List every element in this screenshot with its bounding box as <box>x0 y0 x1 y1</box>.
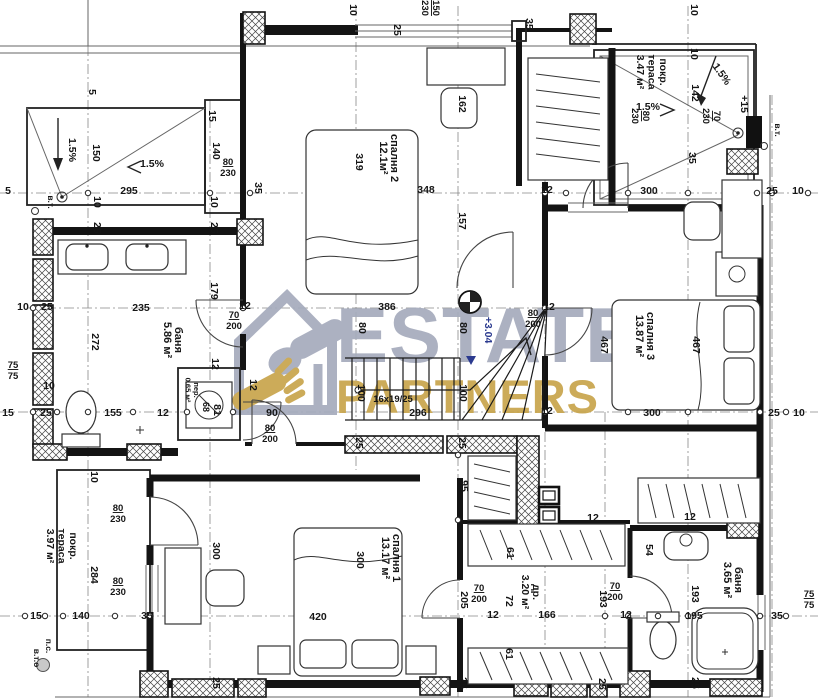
chair-bedroom1 <box>206 570 244 606</box>
dimension-label: 80200 <box>262 423 278 445</box>
dimension-label: 25 <box>91 222 103 234</box>
room-label: др.3.20 м² <box>519 575 542 610</box>
dimension-label: 10 <box>91 196 103 208</box>
dimension-label: 81 <box>211 404 223 416</box>
dimension-label: 35 <box>252 182 264 194</box>
dimension-label: 319 <box>353 153 365 171</box>
dimension-label: 5 <box>86 89 98 95</box>
dimension-label: 54 <box>643 544 655 556</box>
sink-icon <box>126 244 168 270</box>
floor-plan-sheet: ESTATE PARTNERS <box>0 0 820 700</box>
room-label: спалня 113.17 м² <box>379 534 402 582</box>
dimension-label: 80 <box>356 322 368 334</box>
dimension-label: 25 <box>457 677 469 689</box>
dimension-label: 61 <box>503 648 515 660</box>
dimension-label: 15 <box>2 407 14 419</box>
dimension-label: в.т.о <box>32 649 42 668</box>
dimension-label: 12 <box>209 358 221 370</box>
dimension-label: 300 <box>643 407 661 419</box>
dimension-label: 35 <box>523 18 535 30</box>
dimension-label: 150 <box>90 144 102 162</box>
nightstand-bedroom1 <box>406 646 436 674</box>
dimension-label: 15 <box>30 610 42 622</box>
dimension-label: 12 <box>541 405 553 417</box>
dimension-label: 16x19/25 <box>373 394 413 405</box>
dimension-label: 166 <box>538 609 556 621</box>
toilet-icon <box>66 391 96 433</box>
room-label: баня5.86 м² <box>161 322 184 359</box>
dimension-label: 142 <box>689 84 701 102</box>
dimension-label: 12 <box>543 301 555 313</box>
dimension-label: 25 <box>210 677 222 689</box>
dimension-label: 80230 <box>110 576 126 598</box>
dimension-label: 70200 <box>607 581 623 603</box>
dimension-label: +15 <box>738 95 750 113</box>
dimension-label: 300 <box>210 542 222 560</box>
dimension-label: 296 <box>409 407 427 419</box>
dimension-label: в.т. <box>773 123 783 136</box>
dimension-label: 12 <box>587 512 599 524</box>
dimension-label: 284 <box>88 566 100 584</box>
dimension-label: 5 <box>5 185 11 197</box>
dimension-label: 10 <box>88 471 100 483</box>
dimension-label: 205 <box>458 591 470 609</box>
dimension-label: 1.5% <box>66 138 78 163</box>
dimension-label: 155 <box>104 407 122 419</box>
room-label: баня3.65 м² <box>721 562 744 599</box>
room-label: покр.тераса3.97 м² <box>44 528 79 563</box>
chair-bedroom3 <box>684 202 720 240</box>
dimension-label: 80230 <box>220 157 236 179</box>
dimension-label: 100 <box>355 384 367 402</box>
dimension-label: 70230 <box>700 108 722 124</box>
nightstand-bedroom1 <box>258 646 290 674</box>
dimension-label: 25 <box>766 185 778 197</box>
dimension-label: 12 <box>239 300 251 312</box>
door-closet <box>422 580 460 618</box>
dimension-label: 1.5% <box>140 158 165 170</box>
dimension-label: 100 <box>457 384 469 402</box>
dimension-label: 12 <box>487 609 499 621</box>
nightstand-bedroom3 <box>716 252 758 296</box>
dimension-label: 10 <box>17 301 29 313</box>
dimension-label: 272 <box>89 333 101 351</box>
dimension-label: 10 <box>688 4 700 16</box>
dimension-label: 12 <box>247 379 259 391</box>
dimension-label: 15 <box>206 110 218 122</box>
dimension-label: 467 <box>598 336 610 354</box>
dimension-label: 25 <box>596 678 608 690</box>
dimension-label: 1.5% <box>636 101 661 113</box>
dimension-label: 300 <box>354 551 366 569</box>
desk-bedroom1 <box>165 548 201 624</box>
dimension-label: 61 <box>504 547 516 559</box>
dimension-label: 12 <box>620 609 632 621</box>
dimension-label: 90 <box>266 407 278 419</box>
desk-bedroom2 <box>427 48 505 85</box>
dimension-label: 72 <box>503 595 515 607</box>
dimension-label: 68 <box>201 402 211 412</box>
dimension-label: 25 <box>41 301 53 313</box>
room-label: спалня 313.87 м² <box>633 312 656 360</box>
dimension-label: 157 <box>456 212 468 230</box>
dimension-label: 179 <box>208 282 220 300</box>
dimension-label: 420 <box>309 611 327 623</box>
dimension-label: 195 <box>685 610 703 622</box>
dimension-label: 95 <box>458 480 470 492</box>
dimension-label: 140 <box>210 142 222 160</box>
dimension-label: 300 <box>640 185 658 197</box>
dimension-label: 70200 <box>226 310 242 332</box>
dimension-label: 10 <box>793 407 805 419</box>
slope-arrow-icon <box>701 56 716 96</box>
dimension-label: 12 <box>157 407 169 419</box>
dimension-label: +3.04 <box>482 317 494 344</box>
floor-plan-drawing: ESTATE PARTNERS <box>0 0 820 700</box>
dimension-label: 140 <box>72 610 90 622</box>
dimension-label: 12 <box>541 184 553 196</box>
dimension-label: 150230 <box>419 0 441 16</box>
dimension-label: 7575 <box>804 589 815 611</box>
dimension-label: 193 <box>689 585 701 603</box>
dimension-label: 1.5% <box>710 61 734 88</box>
dimension-label: 25 <box>768 407 780 419</box>
dimension-label: 35 <box>771 610 783 622</box>
slope-arrow-icon <box>660 104 674 116</box>
door-bedroom2 <box>457 232 513 288</box>
door-bedroom1-terrace <box>150 497 198 545</box>
dimension-label: 25 <box>40 407 52 419</box>
dimension-label: 35 <box>141 610 153 622</box>
dimension-label: 25 <box>689 677 701 689</box>
dimension-label: 80 <box>457 322 469 334</box>
dimension-label: 10 <box>688 48 700 60</box>
dimension-label: 70200 <box>471 583 487 605</box>
sink-icon <box>66 244 108 270</box>
toilet-icon <box>650 621 676 659</box>
dimension-label: 25 <box>391 24 403 36</box>
dimension-label: 10 <box>208 196 220 208</box>
dimension-label: 10 <box>347 4 359 16</box>
dimension-label: 25 <box>456 437 468 449</box>
dimension-label: п.с. <box>44 639 54 654</box>
windows <box>355 21 526 41</box>
dimension-label: 12 <box>684 511 696 523</box>
dimension-label: 386 <box>378 301 396 313</box>
dimension-label: 7575 <box>8 360 19 382</box>
floor-drain-icon <box>136 426 144 434</box>
shafts <box>539 487 559 524</box>
dimension-label: 162 <box>456 95 468 113</box>
estate-partners-watermark: ESTATE PARTNERS <box>229 291 638 423</box>
dimension-label: 10 <box>43 380 55 392</box>
dimension-label: 35 <box>686 152 698 164</box>
dimension-label: 348 <box>417 184 435 196</box>
dimension-label: 10 <box>792 185 804 197</box>
room-label: покр.тераса3.47 м² <box>634 54 669 89</box>
dimension-label: в.т. <box>46 195 56 208</box>
dimension-label: 235 <box>132 302 150 314</box>
dimension-label: 467 <box>690 336 702 354</box>
dimension-label: 25 <box>208 222 220 234</box>
dimension-label: 295 <box>120 185 138 197</box>
dimension-label: 80230 <box>110 503 126 525</box>
dimension-label: 25 <box>353 437 365 449</box>
